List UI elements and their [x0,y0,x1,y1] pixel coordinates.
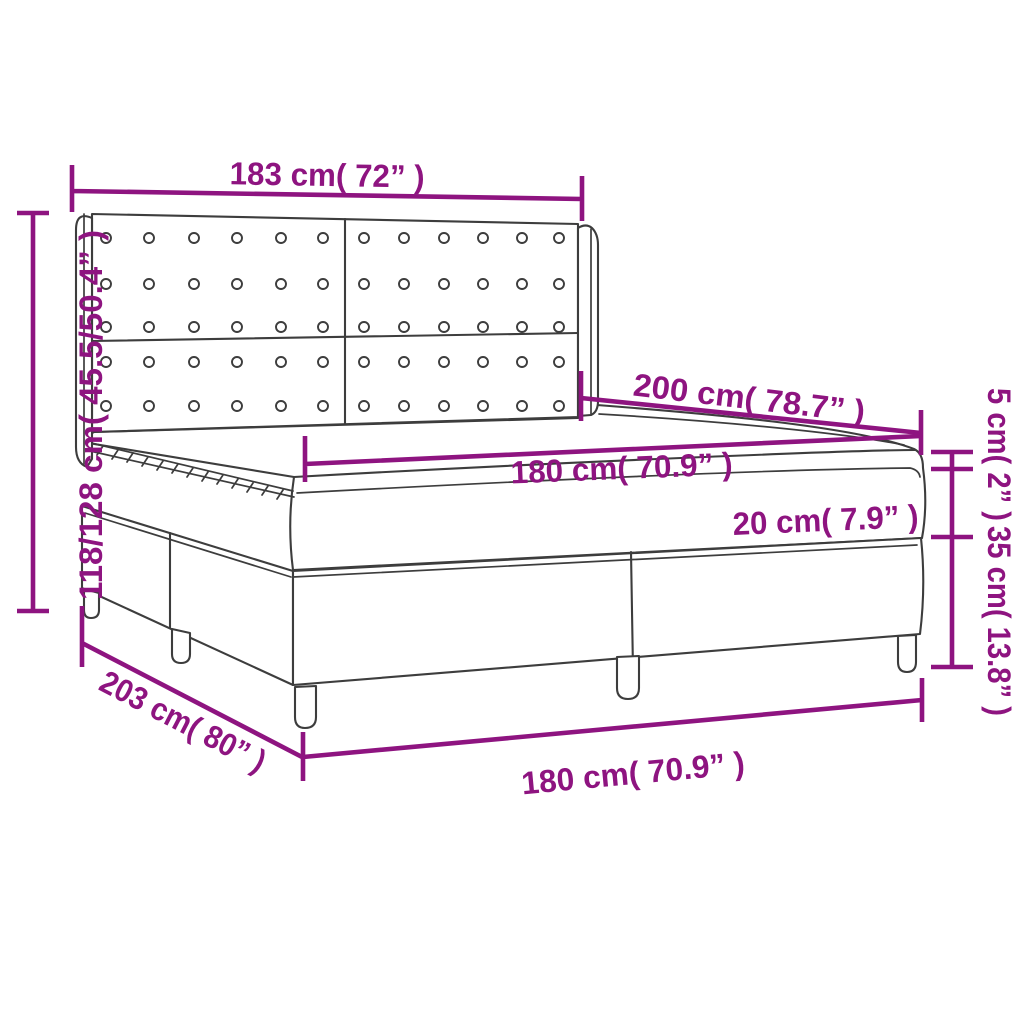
tufting-button [144,322,154,332]
tufting-button [318,401,328,411]
tufting-button [144,233,154,243]
dim-label-headboard-width: 183 cm( 72” ) [229,155,425,194]
tufting-button [232,357,242,367]
dim-label-base-height: 35 cm( 13.8” ) [981,526,1017,716]
tufting-button [318,322,328,332]
tufting-button [144,401,154,411]
tufting-button [359,322,369,332]
tufting-button [189,233,199,243]
tufting-button [276,322,286,332]
dim-line-topper-and-base-height [931,452,973,667]
dim-label-headboard-height: 118/128 cm( 45.5/50.4” ) [73,230,109,600]
tufting-button [517,322,527,332]
dim-label-base-width: 180 cm( 70.9” ) [520,745,746,802]
tufting-button [399,322,409,332]
tufting-button [232,322,242,332]
tufting-button [478,401,488,411]
tufting-button [359,279,369,289]
tufting-button [439,357,449,367]
tufting-button [478,279,488,289]
bed-dimension-diagram: 183 cm( 72” ) 118/128 cm( 45.5/50.4” ) 2… [0,0,1024,1024]
tufting-button [189,322,199,332]
tufting-button [276,357,286,367]
tufting-button [318,279,328,289]
tufting-button [554,322,564,332]
tufting-button [554,357,564,367]
tufting-button [359,233,369,243]
tufting-button [439,233,449,243]
tufting-button [189,401,199,411]
tufting-button [439,401,449,411]
tufting-button [439,279,449,289]
bed-dimension-diagram-page: 183 cm( 72” ) 118/128 cm( 45.5/50.4” ) 2… [0,0,1024,1024]
dim-label-topper-thickness: 5 cm( 2” ) [981,388,1017,521]
bed-leg [898,635,916,672]
tufting-button [232,401,242,411]
tufting-button [359,401,369,411]
tufting-button [318,233,328,243]
tufting-button [144,279,154,289]
tufting-button [554,233,564,243]
tufting-button [554,401,564,411]
dim-label-base-length: 203 cm( 80” ) [94,663,272,779]
tufting-button [554,279,564,289]
tufting-button [517,357,527,367]
tufting-button [399,357,409,367]
tufting-button [189,357,199,367]
tufting-button [276,233,286,243]
tufting-button [232,279,242,289]
tufting-button [478,357,488,367]
bed-leg [295,686,316,728]
tufting-button [144,357,154,367]
bed-leg [617,656,639,699]
tufting-button [232,233,242,243]
tufting-button [276,401,286,411]
tufting-button [399,233,409,243]
dim-line-headboard-height [17,213,49,611]
tufting-button [439,322,449,332]
bed-leg [172,629,190,663]
tufting-button [189,279,199,289]
tufting-button [478,233,488,243]
tufting-button [478,322,488,332]
tufting-button [399,401,409,411]
headboard-panel [92,214,578,432]
tufting-button [318,357,328,367]
tufting-button [517,401,527,411]
tufting-button [517,279,527,289]
tufting-button [276,279,286,289]
tufting-button [359,357,369,367]
tufting-button [517,233,527,243]
tufting-button [399,279,409,289]
